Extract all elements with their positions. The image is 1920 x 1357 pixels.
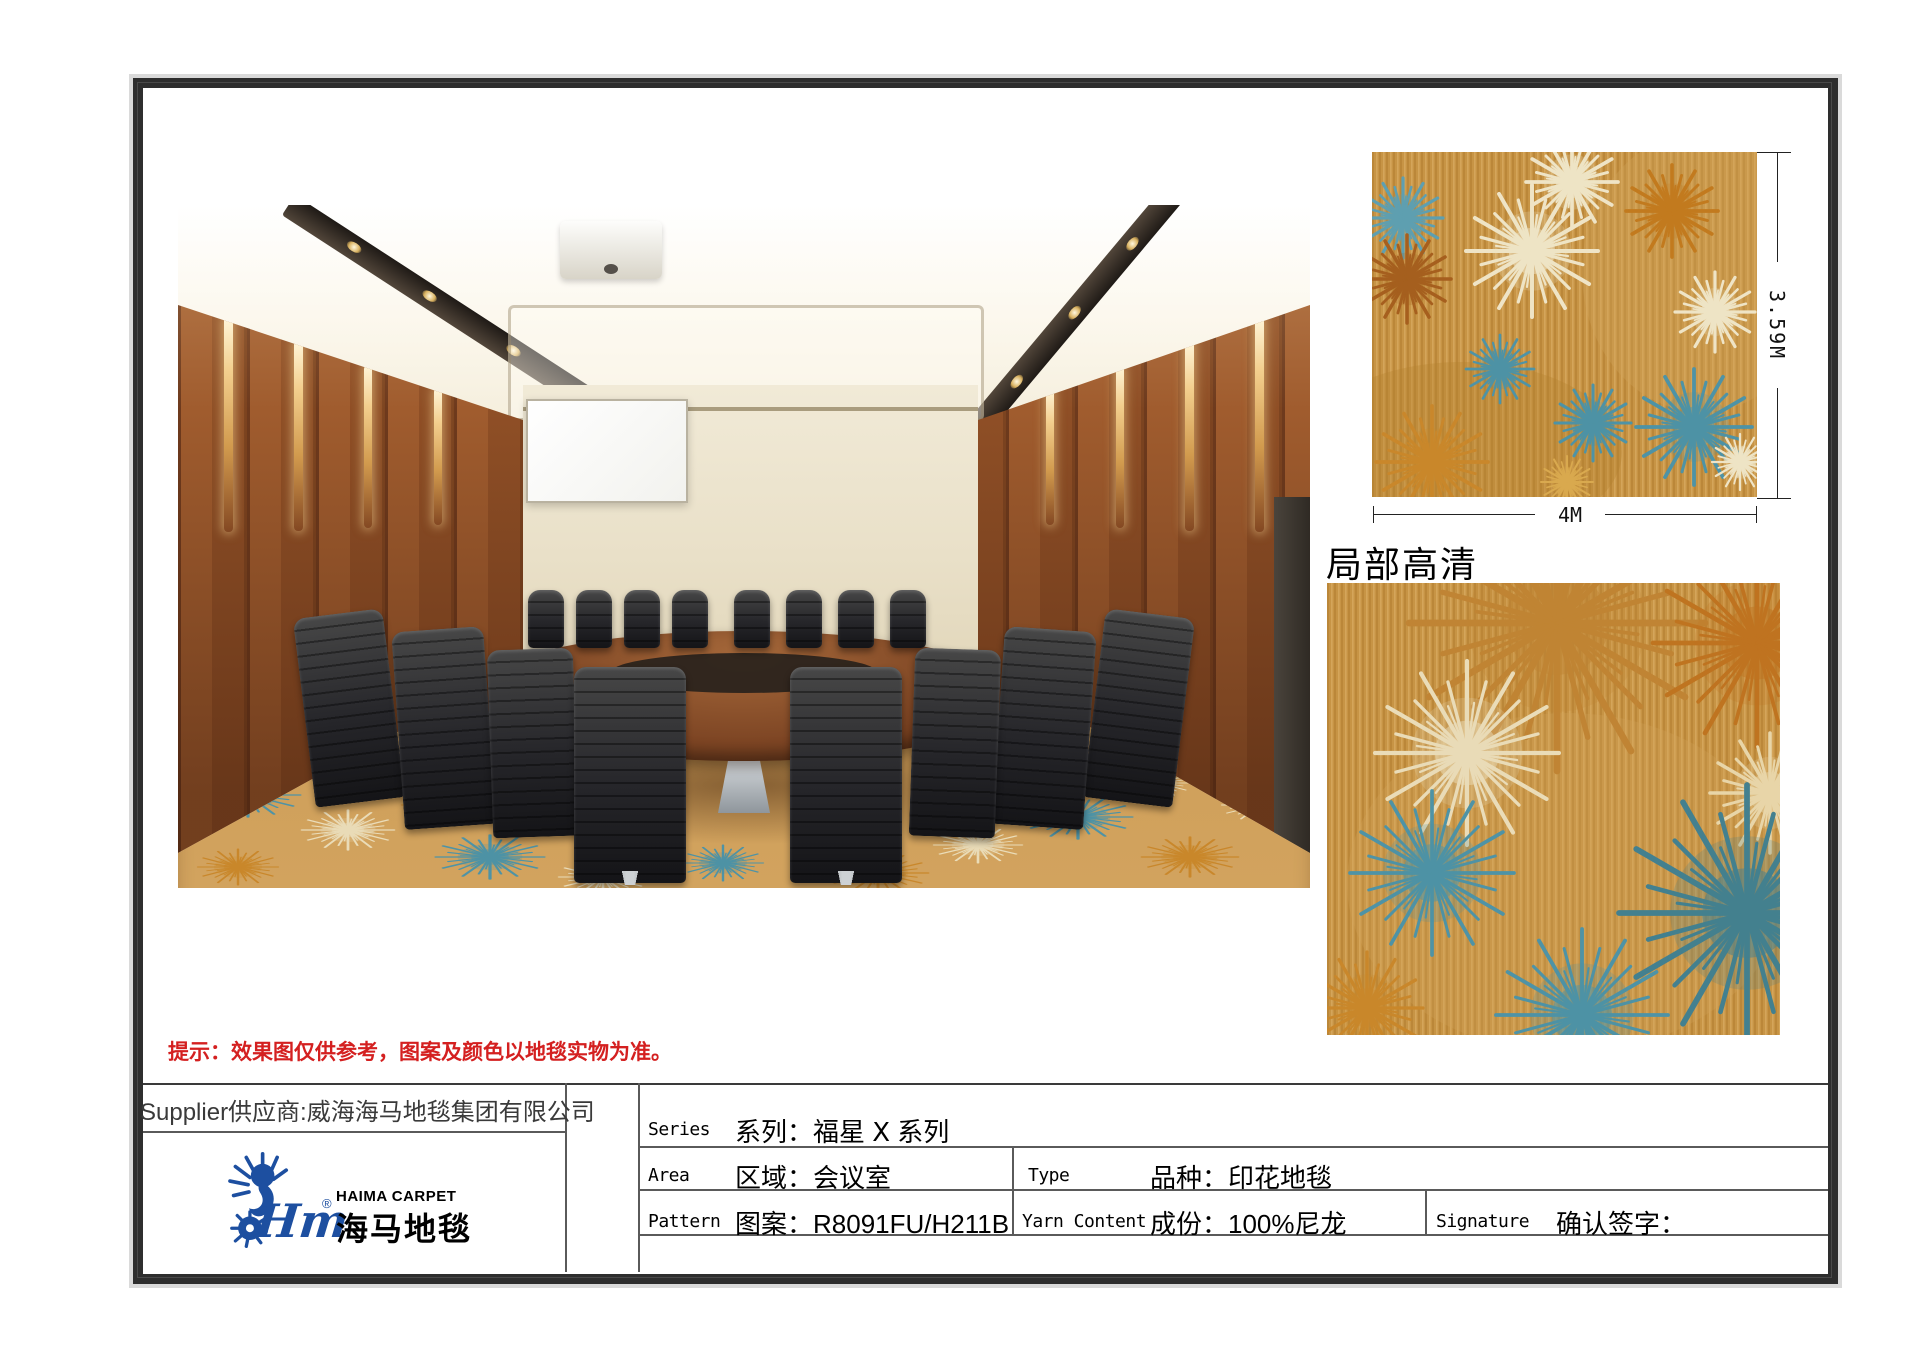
office-chair <box>574 667 686 883</box>
detail-title: 局部高清 <box>1326 536 1478 588</box>
table-border <box>143 1131 565 1133</box>
office-chair <box>786 590 822 648</box>
office-chair <box>734 590 770 648</box>
pattern-value: 图案：R8091FU/H211B <box>735 1204 1009 1241</box>
area-label: Area <box>648 1165 689 1186</box>
table-border <box>1425 1189 1427 1234</box>
table-border <box>1012 1146 1014 1234</box>
office-chair <box>576 590 612 648</box>
table-border <box>143 1083 1828 1085</box>
office-chair <box>672 590 708 648</box>
width-dimension-label: 4M <box>1535 503 1605 527</box>
area-value: 区域：会议室 <box>735 1158 891 1195</box>
height-dimension-tick-top <box>1757 152 1791 153</box>
series-label: Series <box>648 1119 710 1140</box>
signature-label: Signature <box>1436 1211 1529 1232</box>
office-chair <box>838 590 874 648</box>
sideboard <box>1274 497 1310 853</box>
type-value: 品种：印花地毯 <box>1150 1158 1332 1195</box>
height-dimension-label: 3.59M <box>1763 262 1791 388</box>
type-label: Type <box>1028 1165 1069 1186</box>
room-render <box>178 205 1310 888</box>
carpet-swatch-image <box>1372 152 1757 497</box>
width-dimension-tick-left <box>1373 506 1374 523</box>
chair-base <box>792 871 900 885</box>
signature-value: 确认签字： <box>1556 1204 1686 1241</box>
projection-screen <box>526 399 688 503</box>
chair-base <box>576 871 684 885</box>
pattern-label: Pattern <box>648 1211 720 1232</box>
office-chair <box>487 648 580 839</box>
yarn-content-label: Yarn Content <box>1022 1211 1146 1232</box>
yarn-content-value: 成份：100%尼龙 <box>1150 1204 1347 1241</box>
supplier-row: Supplier供应商:威海海马地毯集团有限公司 <box>140 1092 595 1127</box>
office-chair <box>528 590 564 648</box>
disclaimer-text: 提示：效果图仅供参考，图案及颜色以地毯实物为准。 <box>168 1036 672 1066</box>
logo-name-en: HAIMA CARPET <box>336 1188 456 1205</box>
logo-name-cn: 海马地毯 <box>336 1204 472 1250</box>
registered-mark: ® <box>322 1196 332 1211</box>
spec-sheet-canvas: 3.59M 4M 局部高清 提示：效果图仅供参考，图案及颜色以地毯实物为准。 <box>0 0 1920 1357</box>
office-chair <box>991 626 1097 830</box>
office-chair <box>909 648 1002 839</box>
height-dimension-tick-bottom <box>1757 498 1791 499</box>
office-chair <box>391 626 497 830</box>
series-value: 系列：福星 Ⅹ 系列 <box>735 1112 949 1149</box>
table-border <box>638 1083 640 1272</box>
ceiling-projector <box>560 221 662 279</box>
carpet-detail-image <box>1327 583 1780 1035</box>
office-chair <box>890 590 926 648</box>
office-chair <box>624 590 660 648</box>
office-chair <box>790 667 902 883</box>
width-dimension-tick-right <box>1756 506 1757 523</box>
